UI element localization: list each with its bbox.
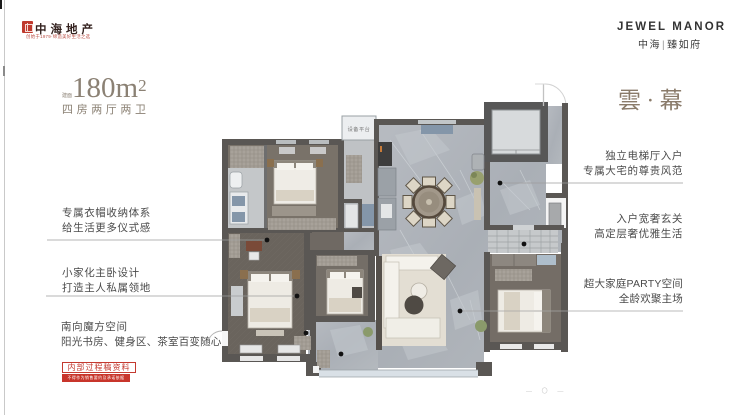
svg-text:设备平台: 设备平台	[348, 125, 371, 133]
